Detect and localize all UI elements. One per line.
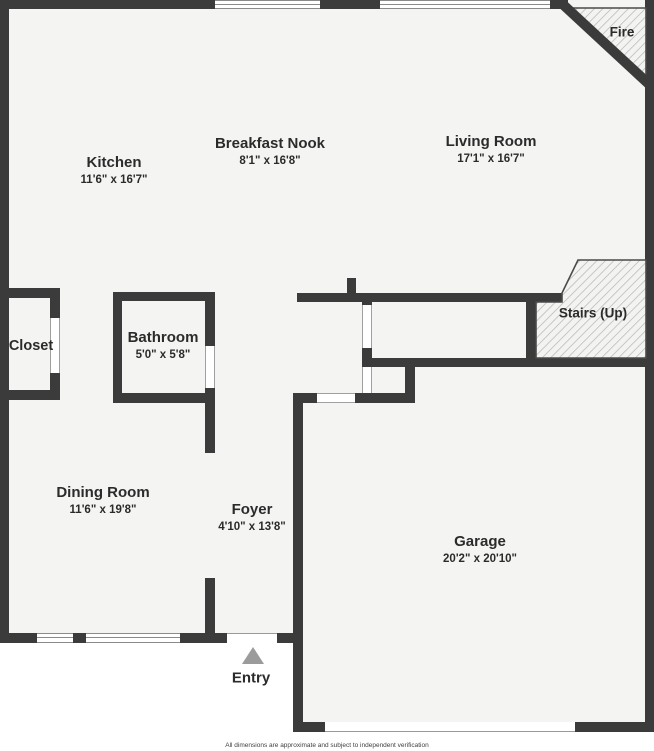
wall-segment xyxy=(320,0,380,9)
bathroom-wall xyxy=(113,393,215,403)
bathroom-door-opening xyxy=(205,346,215,388)
garage-wall xyxy=(355,393,415,403)
wall-segment xyxy=(205,403,215,453)
window-symbol xyxy=(86,633,180,643)
disclaimer-text: All dimensions are approximate and subje… xyxy=(0,742,654,749)
garage-door-opening xyxy=(317,393,355,403)
bathroom-wall xyxy=(205,388,215,403)
room-dims: 11'6" x 19'8" xyxy=(56,502,149,517)
window-symbol xyxy=(380,0,550,9)
foyer-door-opening xyxy=(362,367,372,393)
closet-label: Closet xyxy=(9,338,53,354)
house-floor xyxy=(0,0,654,643)
wall-stub xyxy=(347,278,356,293)
bathroom-wall xyxy=(113,292,215,301)
room-label-dining-room: Dining Room 11'6" x 19'8" xyxy=(56,483,149,517)
room-name: Breakfast Nook xyxy=(215,134,325,154)
room-name: Foyer xyxy=(218,500,286,520)
wall-segment xyxy=(0,0,9,643)
wall-segment xyxy=(180,633,227,643)
bathroom-wall xyxy=(113,292,122,403)
room-label-living-room: Living Room 17'1" x 16'7" xyxy=(446,132,537,166)
hall-door-opening xyxy=(362,305,372,348)
room-name: Dining Room xyxy=(56,483,149,503)
wall-segment xyxy=(0,633,37,643)
room-dims: 8'1" x 16'8" xyxy=(215,153,325,168)
entry-arrow-icon xyxy=(242,647,264,664)
closet-wall xyxy=(0,390,60,400)
room-dims: 5'0" x 5'8" xyxy=(128,347,199,362)
garage-wall xyxy=(293,393,303,732)
room-dims: 11'6" x 16'7" xyxy=(81,172,148,187)
hall-wall xyxy=(362,293,372,305)
window-symbol xyxy=(215,0,320,9)
room-label-foyer: Foyer 4'10" x 13'8" xyxy=(218,500,286,534)
room-label-kitchen: Kitchen 11'6" x 16'7" xyxy=(81,153,148,187)
stairs-label: Stairs (Up) xyxy=(559,306,627,321)
garage-floor xyxy=(293,643,654,732)
entry-label: Entry xyxy=(232,670,270,687)
room-label-breakfast-nook: Breakfast Nook 8'1" x 16'8" xyxy=(215,134,325,168)
room-dims: 17'1" x 16'7" xyxy=(446,151,537,166)
room-label-garage: Garage 20'2" x 20'10" xyxy=(443,532,517,566)
room-dims: 4'10" x 13'8" xyxy=(218,519,286,534)
floor-plan: Kitchen 11'6" x 16'7" Breakfast Nook 8'1… xyxy=(0,0,654,751)
fireplace-label: Fire xyxy=(610,25,635,40)
garage-wall xyxy=(293,722,325,732)
wall-segment xyxy=(73,633,86,643)
room-name: Garage xyxy=(443,532,517,552)
wall-segment xyxy=(205,578,215,633)
wall-segment xyxy=(0,0,215,9)
room-name: Bathroom xyxy=(128,328,199,348)
room-name: Living Room xyxy=(446,132,537,152)
wall-segment xyxy=(550,0,568,9)
bathroom-wall xyxy=(205,292,215,346)
room-label-bathroom: Bathroom 5'0" x 5'8" xyxy=(128,328,199,362)
garage-wall xyxy=(575,722,654,732)
window-symbol xyxy=(37,633,73,643)
stairs-wall xyxy=(526,293,536,367)
garage-bay-opening xyxy=(325,722,575,732)
room-name: Kitchen xyxy=(81,153,148,173)
entry-opening xyxy=(227,633,277,643)
hall-wall xyxy=(362,348,372,358)
room-dims: 20'2" x 20'10" xyxy=(443,551,517,566)
hall-wall xyxy=(297,293,565,302)
closet-wall xyxy=(50,288,60,318)
